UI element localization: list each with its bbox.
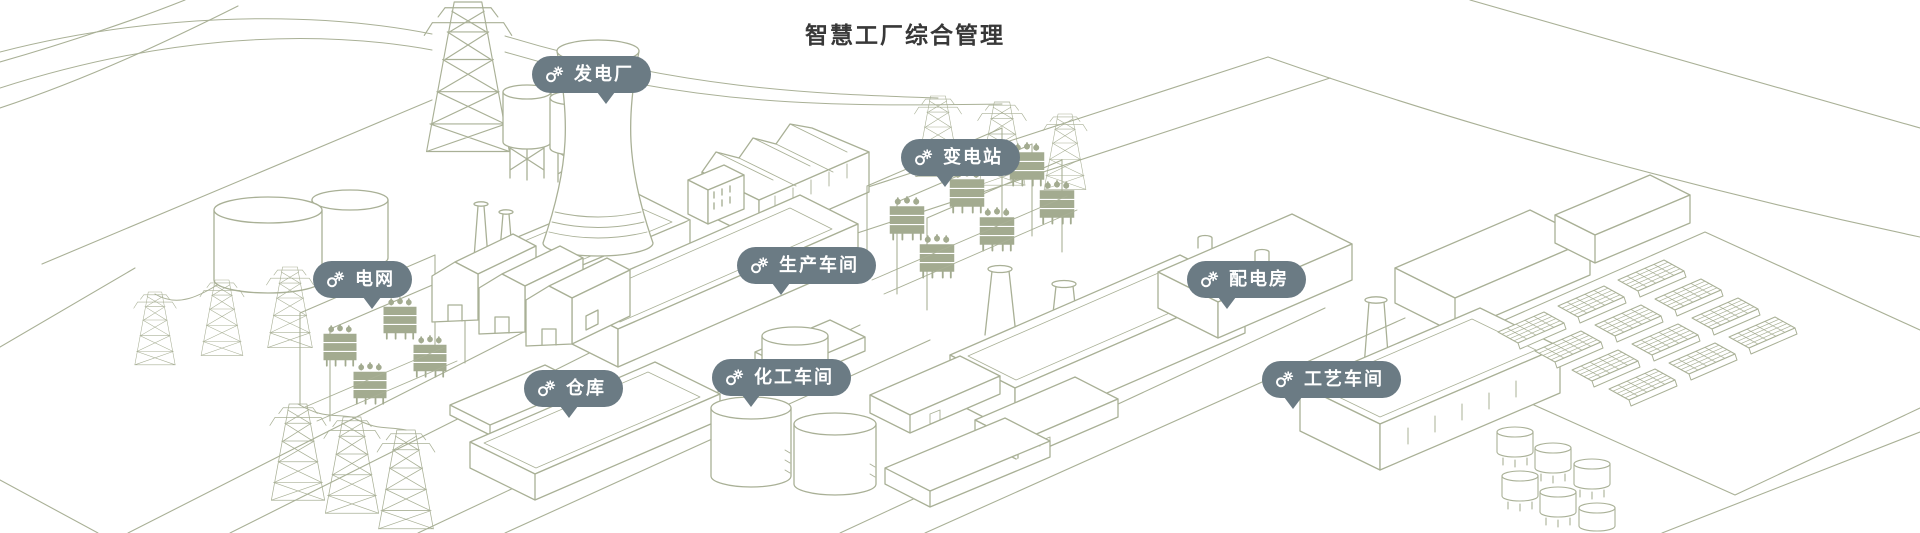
map-pin-warehouse[interactable]: 仓库 bbox=[524, 370, 623, 407]
smart-factory-map: 智慧工厂综合管理 发电厂 变电站 电网 生产车间 配电房 仓库 化工车间 工艺车… bbox=[0, 0, 1920, 533]
map-pin-production-workshop[interactable]: 生产车间 bbox=[737, 247, 876, 284]
gear-icon bbox=[914, 147, 934, 167]
map-pin-power-plant[interactable]: 发电厂 bbox=[532, 56, 651, 93]
gear-icon bbox=[725, 367, 745, 387]
gear-icon bbox=[1275, 369, 1295, 389]
badge-label: 工艺车间 bbox=[1304, 370, 1384, 388]
gear-icon bbox=[326, 269, 346, 289]
gear-icon bbox=[545, 64, 565, 84]
badge-label: 发电厂 bbox=[574, 65, 634, 83]
factory-isometric-drawing bbox=[0, 0, 1920, 533]
page-title: 智慧工厂综合管理 bbox=[805, 16, 1005, 50]
map-pin-distribution-room[interactable]: 配电房 bbox=[1187, 261, 1306, 298]
map-pin-process-workshop[interactable]: 工艺车间 bbox=[1262, 361, 1401, 398]
map-pin-substation[interactable]: 变电站 bbox=[901, 139, 1020, 176]
badge-label: 生产车间 bbox=[779, 256, 859, 274]
gear-icon bbox=[1200, 269, 1220, 289]
gear-icon bbox=[750, 255, 770, 275]
badge-label: 电网 bbox=[355, 270, 395, 288]
badge-label: 化工车间 bbox=[754, 368, 834, 386]
badge-label: 变电站 bbox=[943, 148, 1003, 166]
map-pin-chemical-workshop[interactable]: 化工车间 bbox=[712, 359, 851, 396]
small-tanks-drawing bbox=[1497, 427, 1615, 531]
badge-label: 仓库 bbox=[566, 379, 606, 397]
chemical-tanks-drawing bbox=[711, 320, 876, 495]
badge-label: 配电房 bbox=[1229, 270, 1289, 288]
gear-icon bbox=[537, 378, 557, 398]
map-pin-power-grid[interactable]: 电网 bbox=[313, 261, 412, 298]
